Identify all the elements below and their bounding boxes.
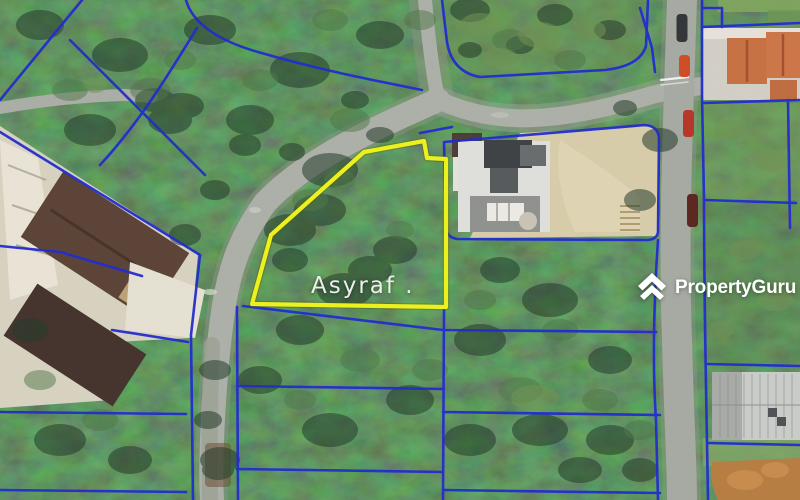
propertyguru-logo-icon [636,271,668,304]
plot-owner-label: Asyraf . [311,273,415,299]
satellite-photo: Asyraf . PropertyGuru [0,0,800,500]
photo-grain-overlay [0,0,800,500]
propertyguru-logo-text: PropertyGuru [675,277,796,299]
propertyguru-watermark: PropertyGuru [636,271,796,304]
map-scene [0,0,800,500]
